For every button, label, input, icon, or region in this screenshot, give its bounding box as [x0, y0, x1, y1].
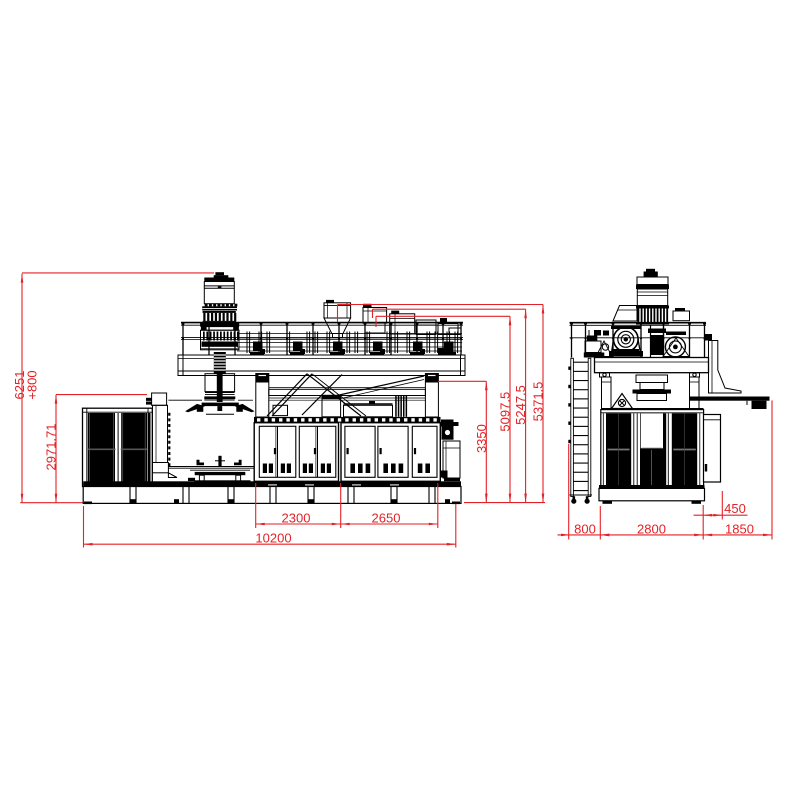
- svg-text:800: 800: [574, 521, 596, 536]
- svg-text:3350: 3350: [474, 424, 489, 453]
- svg-text:5371.5: 5371.5: [531, 382, 546, 422]
- svg-text:2650: 2650: [372, 511, 401, 526]
- svg-text:5097.5: 5097.5: [498, 392, 513, 432]
- svg-text:2800: 2800: [637, 521, 666, 536]
- svg-text:2971.71: 2971.71: [44, 424, 59, 471]
- svg-text:10200: 10200: [255, 530, 291, 545]
- svg-text:1850: 1850: [725, 521, 754, 536]
- svg-text:450: 450: [724, 501, 746, 516]
- svg-text:+800: +800: [24, 370, 39, 399]
- svg-text:2300: 2300: [282, 511, 311, 526]
- svg-text:5247.5: 5247.5: [513, 385, 528, 425]
